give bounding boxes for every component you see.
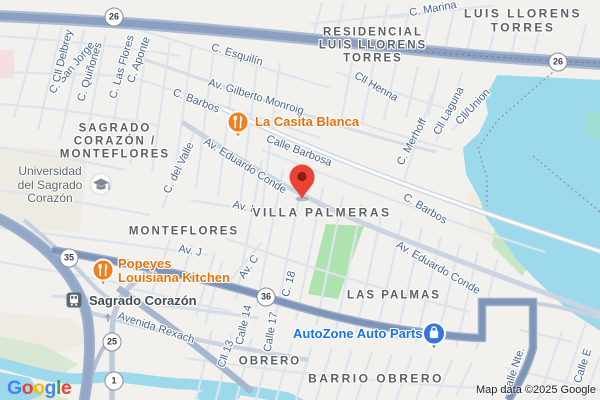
map-data-attribution: Map data ©2025 Google (476, 384, 596, 396)
street-label-avenida-rexach: Avenida Rexach (116, 310, 196, 346)
route-shield-1: 1 (105, 372, 124, 391)
area-label-obrero: OBRERO (239, 356, 301, 369)
street-label-esquilin: C. Esquilín (210, 41, 264, 68)
street-label-calle-e: Calle E (572, 347, 594, 384)
route-shield-25: 25 (103, 333, 122, 352)
street-label-eduardo-conde-lower: Av. Eduardo Conde (394, 239, 482, 297)
google-logo[interactable]: Google (7, 377, 71, 400)
route-shield-26-east: 26 (549, 53, 568, 72)
street-label-cll-13: Cll 13 (216, 339, 237, 370)
poi-label-popeyes[interactable]: Popeyes Louisiana Kitchen (118, 257, 230, 285)
street-label-marina: C. Marina (408, 0, 457, 19)
route-shield-36: 36 (257, 288, 276, 307)
poi-label-la-casita-blanca[interactable]: La Casita Blanca (255, 115, 359, 129)
street-label-calle-17: Calle 17 (262, 311, 281, 353)
area-label-barrio-obrero: BARRIO OBRERO (308, 372, 444, 386)
street-label-calle-barbosa: Calle Barbosa (265, 133, 334, 169)
street-label-c-18: C. 18 (280, 270, 298, 299)
street-label-calle-14: Calle 14 (234, 304, 255, 346)
street-label-av-i: Av. I (231, 199, 254, 216)
route-shield-26-west: 26 (105, 8, 124, 27)
street-label-gilberto-monroig: Av. Gilberto Monroig (207, 77, 305, 117)
area-label-luis-llorens-torres: LUIS LLORENS TORRES (464, 8, 582, 35)
area-label-villa-palmeras: VILLA PALMERAS (253, 206, 392, 220)
poi-label-sagrado-corazon-station[interactable]: Sagrado Corazón (89, 293, 197, 308)
area-label-residencial-llorens: RESIDENCIAL LUIS LLORENS TORRES (319, 27, 427, 66)
map-canvas[interactable]: C. San Jorge Cll Delbrey C. Quiñones C. … (0, 0, 600, 400)
area-label-sagrado-corazon: SAGRADO CORAZÓN / MONTEFLORES (60, 123, 170, 162)
area-label-monteflores: MONTEFLORES (129, 226, 239, 239)
area-label-las-palmas: LAS PALMAS (347, 290, 441, 303)
poi-label-autozone[interactable]: AutoZone Auto Parts (293, 327, 423, 341)
route-shield-35: 35 (60, 249, 79, 268)
street-label-cll-henna: Cll Henna (352, 70, 400, 105)
poi-label-university[interactable]: Universidad del Sagrado Corazón (18, 165, 83, 206)
street-label-barbos-right: C. Barbos (401, 191, 449, 226)
street-label-merhoff: C. Merhoff (395, 117, 430, 168)
street-label-av-c: Av. C (237, 253, 262, 281)
street-label-barbos-left: C. Barbos (171, 87, 221, 116)
